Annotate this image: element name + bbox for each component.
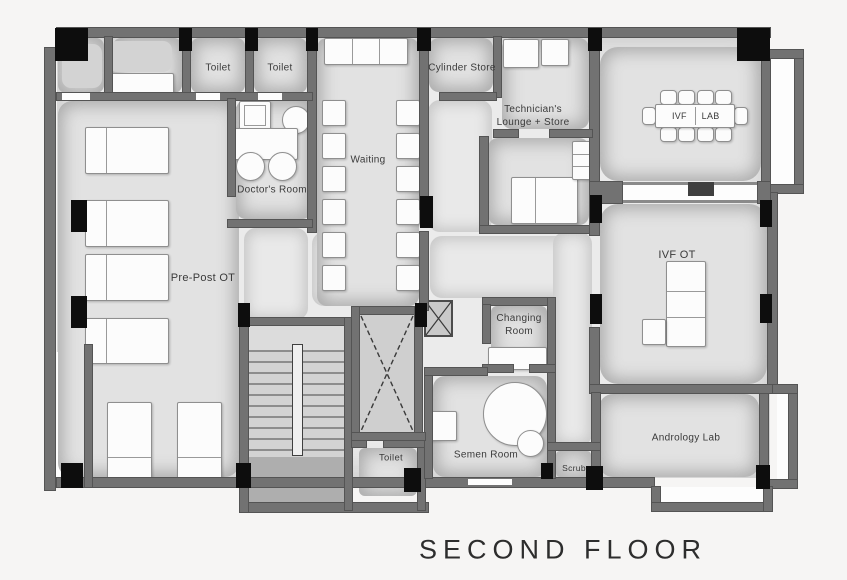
wall-segment — [228, 220, 312, 227]
stool-icon — [236, 152, 265, 181]
chair-icon — [322, 199, 346, 225]
chair-icon — [396, 199, 420, 225]
column — [417, 28, 431, 51]
bed-icon — [85, 127, 169, 174]
wall-segment — [590, 328, 599, 392]
chair-icon — [396, 100, 420, 126]
wall-segment — [420, 37, 428, 209]
room-label-andrology-lab: Andrology Lab — [652, 433, 720, 444]
wall-segment — [420, 232, 428, 310]
wall-segment — [384, 440, 425, 447]
floor-plan: IVF LAB — [0, 0, 847, 580]
chair-icon — [678, 90, 695, 105]
wall-segment — [483, 365, 513, 372]
chair-icon — [396, 133, 420, 159]
column — [238, 303, 250, 327]
corridor — [553, 232, 592, 446]
chair-icon — [734, 107, 748, 125]
window-frame — [599, 200, 770, 203]
chair-icon — [715, 90, 732, 105]
page-title: SECOND FLOOR — [419, 535, 707, 566]
chair-icon — [322, 100, 346, 126]
bed-icon — [511, 177, 578, 224]
stair-handrail — [292, 344, 303, 456]
room-label-toilet-top-left: Toilet — [205, 63, 230, 74]
wall-segment — [85, 345, 92, 487]
wall-segment — [480, 137, 488, 233]
monitor-icon — [239, 101, 271, 130]
chair-icon — [697, 127, 714, 142]
chair-icon — [322, 232, 346, 258]
chair-icon — [660, 90, 677, 105]
column — [590, 195, 602, 223]
elevator-x-icon — [359, 314, 415, 433]
balcony-top-right — [770, 58, 795, 185]
room-label-technicians-lounge: Technician's Lounge + Store — [491, 103, 575, 129]
chair-icon — [678, 127, 695, 142]
column — [760, 294, 772, 323]
wall-segment — [548, 443, 600, 450]
door-opening — [196, 93, 220, 100]
door-opening — [258, 93, 282, 100]
balcony-bottom-right — [777, 393, 789, 480]
bed-icon — [85, 254, 169, 301]
bed-icon — [108, 73, 174, 95]
wall-segment — [425, 372, 432, 478]
room-label-toilet-top-right: Toilet — [267, 63, 292, 74]
room-label-ivf-ot: IVF OT — [658, 249, 695, 261]
ivf-lab-label-left: IVF — [672, 111, 687, 121]
wall-segment — [425, 368, 487, 375]
chair-icon — [396, 166, 420, 192]
wall-segment — [308, 37, 316, 232]
room-label-waiting: Waiting — [350, 155, 385, 166]
wall-segment — [352, 307, 359, 440]
column — [590, 294, 602, 324]
wall-segment — [795, 50, 803, 193]
chair-icon — [660, 127, 677, 142]
wall-segment — [57, 28, 770, 37]
wall-segment — [764, 487, 772, 511]
wall-segment — [652, 503, 772, 511]
stool-icon — [517, 430, 544, 457]
cabinet-icon — [541, 39, 569, 66]
chair-icon — [322, 166, 346, 192]
bed-icon — [85, 318, 169, 364]
chair-icon — [396, 232, 420, 258]
wall-segment — [240, 503, 428, 512]
window-frame — [599, 182, 770, 185]
wall-segment — [483, 305, 490, 343]
column — [245, 28, 258, 51]
column — [541, 463, 553, 479]
wall-segment — [762, 50, 770, 190]
wall-segment — [770, 50, 803, 58]
wall-segment — [480, 226, 598, 233]
room-label-cylinder-store: Cylinder Store — [428, 63, 496, 74]
side-table-icon — [429, 411, 457, 441]
wall-segment — [494, 130, 518, 137]
wall-segment — [483, 298, 555, 305]
wall-segment — [550, 130, 592, 137]
column — [588, 28, 602, 51]
chair-icon — [396, 265, 420, 291]
column — [61, 463, 83, 488]
wall-segment — [345, 318, 352, 510]
column — [756, 465, 770, 489]
chair-icon — [642, 107, 656, 125]
column — [760, 200, 772, 227]
column — [179, 28, 192, 51]
room-label-changing-room: Changing Room — [492, 312, 546, 338]
column — [586, 466, 603, 490]
cabinet-icon — [503, 39, 539, 68]
wall-segment — [688, 182, 714, 196]
side-table-icon — [642, 319, 666, 345]
ivf-lab-label-right: LAB — [702, 111, 720, 121]
room-label-pre-post-ot: Pre-Post OT — [171, 272, 235, 284]
wall-segment — [530, 365, 555, 372]
bed-icon — [177, 402, 222, 480]
room-label-doctors-room: Doctor's Room — [237, 185, 307, 196]
wall-segment — [352, 433, 425, 440]
duct-x-icon — [424, 300, 453, 337]
wall-segment — [105, 37, 112, 95]
column — [71, 200, 87, 232]
wall-segment — [57, 478, 654, 487]
chair-icon — [322, 133, 346, 159]
bed-icon — [107, 402, 152, 480]
door-opening — [62, 93, 90, 100]
wall-segment — [590, 45, 599, 193]
column — [306, 28, 318, 51]
wall-segment — [228, 99, 235, 196]
bay-window-floor — [660, 487, 764, 503]
door-opening — [468, 479, 512, 485]
chair-icon — [322, 265, 346, 291]
room-label-toilet-bottom: Toilet — [379, 453, 403, 464]
column — [415, 303, 427, 327]
room-label-scrub: Scrub — [562, 463, 586, 473]
wall-segment — [548, 298, 555, 478]
column — [737, 28, 770, 61]
chair-icon — [697, 90, 714, 105]
column — [55, 28, 88, 61]
conference-table-icon: IVF LAB — [655, 104, 735, 128]
wall-segment — [590, 385, 772, 393]
wall-segment — [45, 48, 55, 490]
room-label-semen-room: Semen Room — [454, 450, 518, 461]
stool-icon — [268, 152, 297, 181]
bed-icon — [85, 200, 169, 247]
wall-segment — [768, 385, 797, 393]
sofa-icon — [324, 38, 408, 65]
column — [236, 463, 251, 488]
bed-icon — [108, 41, 172, 72]
wall-segment — [240, 318, 352, 325]
column — [404, 468, 421, 492]
column — [420, 196, 433, 228]
corridor — [244, 228, 308, 320]
wall-segment — [352, 440, 366, 447]
operating-table-icon — [666, 261, 706, 347]
wall-segment — [789, 385, 797, 488]
chair-icon — [715, 127, 732, 142]
column — [71, 296, 87, 328]
wall-segment — [440, 93, 496, 100]
